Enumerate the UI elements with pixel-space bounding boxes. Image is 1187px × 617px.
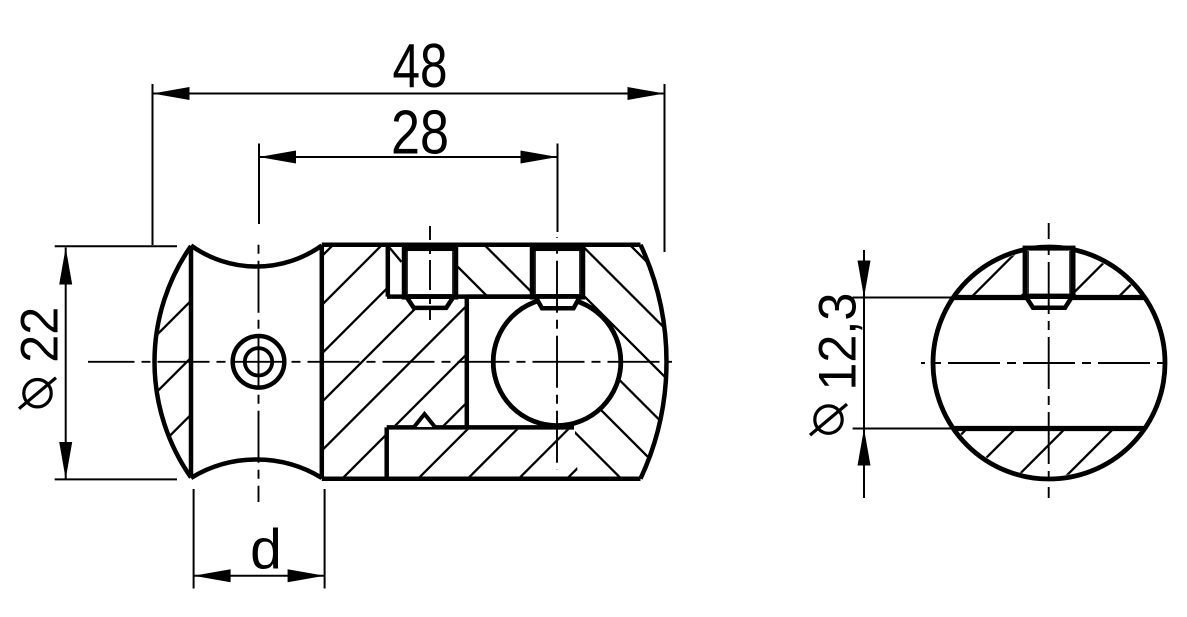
svg-text:28: 28	[391, 99, 449, 168]
svg-text:48: 48	[393, 32, 448, 101]
svg-text:12,3: 12,3	[809, 293, 868, 391]
svg-text:d: d	[250, 518, 282, 582]
svg-text:22: 22	[11, 307, 70, 363]
